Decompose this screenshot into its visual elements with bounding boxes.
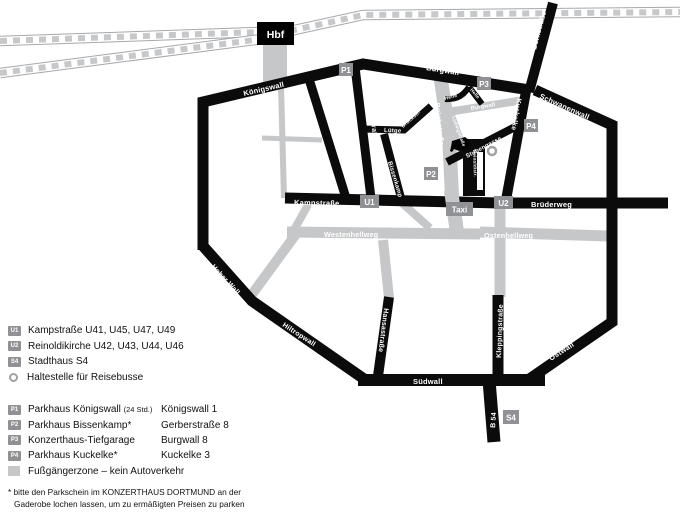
label-luetge: Lütge <box>384 128 402 135</box>
label-kampstrasse: Kampstraße <box>294 198 340 208</box>
badge-p1: P1 <box>339 63 353 76</box>
legend-label: Reinoldikirche U42, U43, U44, U46 <box>28 341 184 352</box>
legend-row-bus: Haltestelle für Reisebusse <box>8 370 184 386</box>
street-katharinenstrasse <box>281 86 284 198</box>
parking-name-text: Konzerthaus-Tiefgarage <box>28 435 135 446</box>
label-burgwall-gray: Burgwall <box>470 102 496 112</box>
p1-badge-icon: P1 <box>8 405 21 415</box>
parking-address: Kuckelke 3 <box>161 450 229 461</box>
city-map: Königswall Burgwall Bornstraße Schwanenw… <box>0 0 680 528</box>
label-westenhellweg: Westenhellweg <box>324 230 378 239</box>
parking-name: Parkhaus Kuckelke* <box>28 450 161 461</box>
parking-name: Konzerthaus-Tiefgarage <box>28 435 161 446</box>
hbf-label: Hbf <box>267 29 285 41</box>
legend-parking: P1 Parkhaus Königswall (24 Std.) Königsw… <box>8 402 229 479</box>
parking-name: Parkhaus Bissenkamp* <box>28 420 161 431</box>
label-reinoldistrasse: Reinoldistr. <box>472 150 478 177</box>
label-ostenhellweg: Ostenhellweg <box>484 231 533 240</box>
street-hoherwall-hiltropwall <box>203 246 367 381</box>
legend-row-fussgaengerzone: Fußgängerzone – kein Autoverkehr <box>8 464 229 479</box>
street-sw-diagonal <box>250 230 299 297</box>
parking-footnote: * bitte den Parkschein im KONZERTHAUS DO… <box>8 487 245 510</box>
label-bissenkamp: Bissenkamp <box>386 161 403 199</box>
badge-p3: P3 <box>477 77 491 90</box>
badge-u1: U1 <box>360 195 379 208</box>
parking-name: Parkhaus Königswall (24 Std.) <box>28 404 161 415</box>
label-suedwall: Südwall <box>413 377 443 386</box>
label-bruederweg: Brüderweg <box>531 200 572 209</box>
u1-badge-icon: U1 <box>8 326 21 336</box>
legend-label: Fußgängerzone – kein Autoverkehr <box>28 466 229 477</box>
parking-address: Königswall 1 <box>161 404 229 415</box>
p3-badge-icon: P3 <box>8 435 21 445</box>
parking-note: (24 Std.) <box>124 405 153 414</box>
svg-text:S4: S4 <box>506 414 516 423</box>
svg-text:P1: P1 <box>341 66 351 75</box>
label-kleppingstrasse: Kleppingstraße <box>496 304 505 358</box>
legend-row-p3: P3 Konzerthaus-Tiefgarage Burgwall 8 <box>8 433 229 448</box>
svg-text:P2: P2 <box>426 170 436 179</box>
hbf-station: Hbf <box>257 22 294 45</box>
badge-u2: U2 <box>494 196 513 209</box>
label-hiltropwall: Hiltropwall <box>281 322 317 349</box>
parking-address: Burgwall 8 <box>161 435 229 446</box>
badge-p4: P4 <box>524 119 538 132</box>
bus-stop-legend-icon <box>9 373 18 382</box>
footnote-line2: Gaderobe lochen lassen, um zu ermäßigten… <box>14 499 245 511</box>
footnote-line1: * bitte den Parkschein im KONZERTHAUS DO… <box>8 487 245 499</box>
svg-text:P4: P4 <box>526 122 536 131</box>
svg-text:U1: U1 <box>364 198 375 207</box>
svg-text:U2: U2 <box>498 199 509 208</box>
u2-badge-icon: U2 <box>8 341 21 351</box>
label-b54: B 54 <box>490 412 498 428</box>
legend-row-u2: U2 Reinoldikirche U42, U43, U44, U46 <box>8 339 184 355</box>
legend-label: Kampstraße U41, U45, U47, U49 <box>28 325 175 336</box>
p4-badge-icon: P4 <box>8 451 21 461</box>
parking-name-text: Parkhaus Bissenkamp* <box>28 420 131 431</box>
label-hansastrasse-nord: Hansastraße <box>366 96 378 141</box>
badge-s4: S4 <box>503 410 519 424</box>
badge-p2: P2 <box>424 167 438 180</box>
parking-address: Gerberstraße 8 <box>161 420 229 431</box>
svg-text:P3: P3 <box>479 80 489 89</box>
street-b54 <box>489 380 494 442</box>
street-hansastrasse-gray <box>383 240 389 298</box>
legend-transit: U1 Kampstraße U41, U45, U47, U49 U2 Rein… <box>8 323 184 385</box>
parking-name-text: Parkhaus Kuckelke* <box>28 450 118 461</box>
legend-row-p4: P4 Parkhaus Kuckelke* Kuckelke 3 <box>8 448 229 463</box>
legend-row-p1: P1 Parkhaus Königswall (24 Std.) Königsw… <box>8 402 229 417</box>
pedestrian-zone-icon <box>8 466 20 476</box>
street-petrikirchhof <box>262 138 322 140</box>
badge-taxi: Taxi <box>446 202 473 216</box>
legend-row-s4: S4 Stadthaus S4 <box>8 354 184 370</box>
svg-text:Taxi: Taxi <box>452 206 467 215</box>
legend-label: Haltestelle für Reisebusse <box>27 372 143 383</box>
legend-row-p2: P2 Parkhaus Bissenkamp* Gerberstraße 8 <box>8 417 229 432</box>
legend-label: Stadthaus S4 <box>28 356 88 367</box>
legend-row-u1: U1 Kampstraße U41, U45, U47, U49 <box>8 323 184 339</box>
s4-badge-icon: S4 <box>8 357 21 367</box>
p2-badge-icon: P2 <box>8 420 21 430</box>
parking-name-text: Parkhaus Königswall <box>28 404 121 415</box>
